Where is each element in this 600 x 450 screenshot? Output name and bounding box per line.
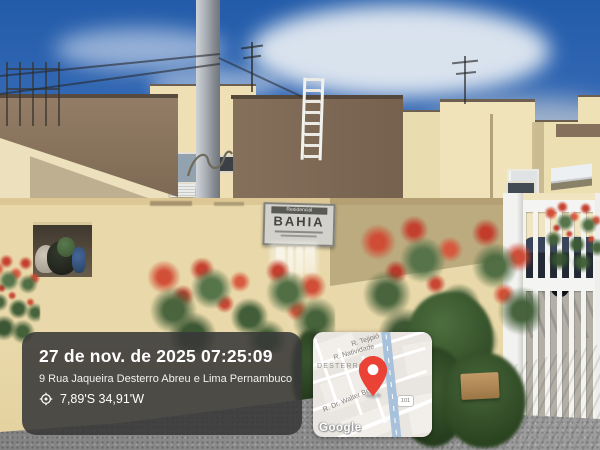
timestamp-label: 27 de nov. de 2025 07:25:09: [39, 346, 290, 366]
bush-blob: [443, 352, 526, 448]
flower-shrub: [545, 198, 600, 273]
garbage-bag-blue: [72, 247, 86, 273]
residencial-sign: Residencial BAHIA: [262, 202, 335, 247]
sign-title: BAHIA: [269, 214, 329, 230]
coordinates-row: 7,89'S 34,91'W: [39, 392, 290, 406]
building-right-trim: [556, 124, 600, 137]
sign-subline: [275, 230, 323, 233]
gps-camera-photo: Residencial BAHIA: [0, 0, 600, 450]
trash-niche: [33, 222, 92, 277]
map-route-shield: 101: [397, 395, 414, 407]
conduit-pipe: [186, 146, 234, 180]
antenna-arm: [456, 71, 476, 75]
flower-shrub: [0, 250, 40, 345]
gps-info-panel: 27 de nov. de 2025 07:25:09 9 Rua Jaquei…: [22, 332, 302, 435]
cloud: [250, 5, 550, 97]
tv-antenna: [239, 42, 265, 92]
building-right-parapet: [578, 95, 600, 124]
coordinates-label: 7,89'S 34,91'W: [60, 392, 144, 406]
location-icon: [39, 392, 53, 406]
roof-ladder: [301, 78, 325, 161]
sign-subline: [281, 235, 317, 238]
downpipe: [490, 114, 493, 206]
wall-graffiti: [150, 201, 192, 206]
cardboard-box: [460, 372, 499, 400]
map-card[interactable]: R. Tejipió R. Natividade DESTERRO R. Dr.…: [313, 332, 432, 437]
tv-antenna: [450, 56, 480, 104]
antenna-mast: [251, 42, 253, 92]
map-attribution: Google: [319, 422, 362, 434]
building-gap-wall: [403, 110, 443, 212]
map-pin-icon: [358, 356, 388, 396]
address-label: 9 Rua Jaqueira Desterro Abreu e Lima Per…: [39, 373, 290, 385]
antenna-mast: [464, 56, 466, 104]
wall-graffiti: [214, 202, 244, 206]
